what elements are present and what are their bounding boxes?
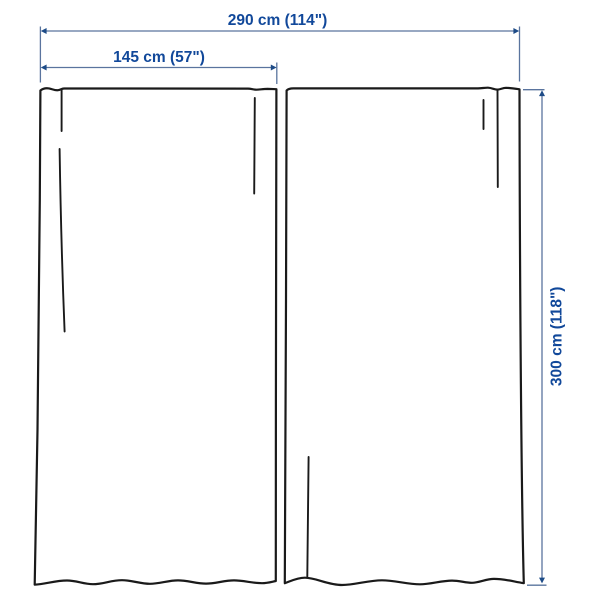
svg-text:300 cm (118"): 300 cm (118") bbox=[549, 287, 566, 387]
svg-text:145 cm (57"): 145 cm (57") bbox=[113, 49, 205, 66]
svg-text:290 cm (114"): 290 cm (114") bbox=[228, 12, 328, 29]
